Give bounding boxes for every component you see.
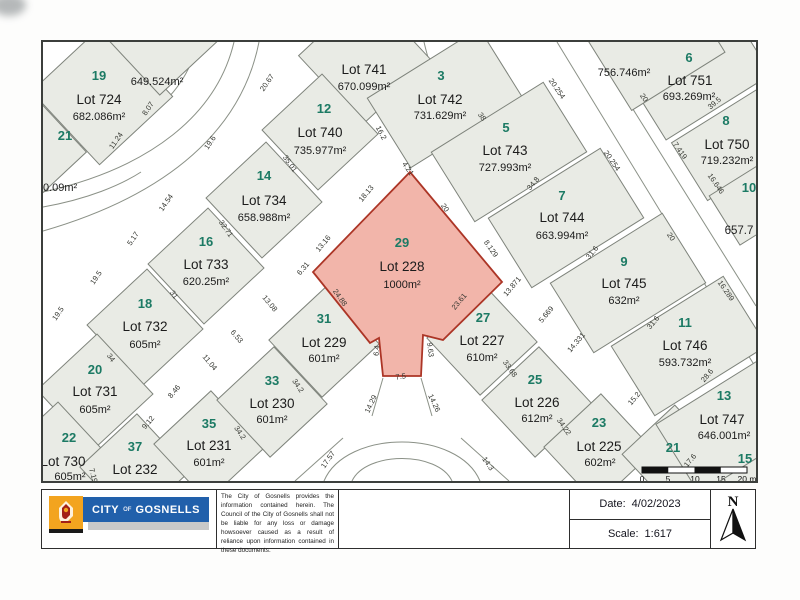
disclaimer-text: The City of Gosnells provides the inform…	[221, 493, 334, 556]
street-number: 27	[476, 310, 490, 325]
map-canvas: 19 Lot 724 682.086m² 21 Lot 741 670.099m…	[43, 42, 756, 481]
lot-area: 610m²	[466, 352, 498, 364]
dimension-label: 20.67	[258, 72, 276, 93]
date-scale-cell: Date: 4/02/2023 Scale: 1:617	[569, 490, 710, 548]
street-number: 25	[528, 372, 542, 387]
lot-area: 605m²	[129, 339, 161, 351]
dimension-label: 9.63	[425, 342, 436, 358]
street-number: 37	[128, 439, 142, 454]
dimension-label: 19.5	[88, 269, 104, 286]
lot-area: 620.25m²	[183, 276, 230, 288]
lot-name: Lot 731	[72, 384, 117, 399]
empty-cell	[339, 490, 569, 548]
dimension-label: 6.53	[229, 328, 245, 345]
street-number: 22	[62, 430, 76, 445]
lot-name: Lot 734	[241, 193, 287, 208]
lot-area: 735.977m²	[294, 145, 347, 157]
lot-name: Lot 750	[704, 137, 749, 152]
lot-area: 646.001m²	[698, 430, 751, 442]
lot-area: 663.994m²	[536, 230, 589, 242]
logo-shadow-bar	[88, 522, 209, 530]
lot-name: Lot 724	[76, 92, 122, 107]
dimension-label: 6.4	[371, 345, 381, 356]
street-number: 7	[558, 188, 565, 203]
lot-area: 612m²	[521, 413, 553, 425]
dimension-label: 18.13	[357, 183, 376, 203]
lot-name: Lot 730	[43, 454, 86, 469]
dimension-label: 7.5	[395, 371, 407, 381]
lot-name: Lot 743	[482, 143, 527, 158]
date-label: Date:	[599, 498, 625, 510]
lot-area: 670.099m²	[338, 81, 391, 93]
north-label: N	[728, 494, 739, 510]
dimension-label: 19.5	[50, 305, 66, 322]
lot-area: 601m²	[308, 353, 340, 365]
street-number: 14	[257, 168, 272, 183]
street-number: 35	[202, 416, 216, 431]
dimension-label: 5.17	[125, 230, 141, 247]
lot-name: Lot 226	[514, 395, 559, 410]
lot-area: 658.988m²	[238, 212, 291, 224]
street-number: 8	[722, 113, 729, 128]
lot-name: Lot 227	[459, 333, 504, 348]
lot-name: Lot 231	[186, 438, 231, 453]
lot-area: 601m²	[193, 457, 225, 469]
title-block: CITY OF GOSNELLS The City of Gosnells pr…	[41, 489, 756, 549]
dimension-label: 5.669	[537, 304, 556, 324]
dimension-label: 14.3	[480, 455, 496, 472]
street-number: 13	[717, 388, 731, 403]
lot-name: Lot 229	[301, 335, 346, 350]
logo-banner: CITY OF GOSNELLS	[83, 497, 209, 522]
dimension-label: 9.12	[140, 414, 156, 431]
street-number: 5	[502, 120, 509, 135]
street-number: 19	[92, 68, 106, 83]
area-label: 756.746m²	[598, 67, 651, 79]
lot-name: Lot 733	[183, 257, 228, 272]
road-number-label: 657.7	[725, 225, 754, 237]
street-number: 6	[685, 50, 692, 65]
street-number-lot-228: 29	[395, 235, 409, 250]
street-number: 9	[620, 254, 627, 269]
street-number: 16	[199, 234, 213, 249]
street-number: 12	[317, 101, 331, 116]
logo-of-text: OF	[123, 507, 131, 513]
street-number: 15	[738, 451, 752, 466]
scale-bar-label: 20 m	[738, 474, 756, 481]
street-number: 23	[592, 415, 606, 430]
lot-area: 719.232m²	[701, 155, 754, 167]
area-label-clipped: 30.09m²	[43, 182, 78, 194]
disclaimer-cell: The City of Gosnells provides the inform…	[216, 490, 339, 548]
dimension-label: 8.46	[166, 383, 182, 400]
logo-city-text: CITY	[92, 504, 119, 516]
lot-area: 593.732m²	[659, 357, 712, 369]
street-number: 3	[437, 68, 444, 83]
street-number: 20	[88, 362, 102, 377]
lot-name: Lot 230	[249, 396, 294, 411]
scale-bar-label: 0	[640, 474, 645, 481]
street-number: 21	[58, 128, 72, 143]
street-number: 10	[742, 180, 756, 195]
scale-row: Scale: 1:617	[570, 520, 710, 549]
gosnells-crest-icon	[49, 496, 83, 529]
dimension-label: 8.129	[482, 238, 500, 259]
lot-area: 605m²	[79, 404, 111, 416]
dimension-label: 14.54	[157, 192, 175, 213]
scale-value: 1:617	[645, 528, 673, 540]
date-row: Date: 4/02/2023	[570, 490, 710, 520]
street-number: 21	[666, 440, 680, 455]
scale-bar-label: 5	[666, 474, 671, 481]
lot-area: 731.629m²	[414, 110, 467, 122]
area-label: 649.524m²	[131, 76, 184, 88]
lot-name: Lot 740	[297, 125, 342, 140]
street-number: 11	[678, 315, 692, 330]
lot-name: Lot 741	[341, 62, 386, 77]
lot-name: Lot 225	[576, 439, 621, 454]
lot-name: Lot 742	[417, 92, 462, 107]
dimension-label: 14.331	[565, 331, 587, 354]
lot-area: 727.993m²	[479, 162, 532, 174]
logo-black-bar	[49, 529, 83, 533]
dimension-label: 11.04	[201, 353, 220, 373]
lot-area: 605m²	[54, 471, 86, 481]
lot-name: Lot 751	[667, 73, 712, 88]
street-number: 33	[265, 373, 279, 388]
lot-name: Lot 746	[662, 338, 707, 353]
scale-bar-label: 15	[716, 474, 726, 481]
lot-name: Lot 232	[112, 462, 157, 477]
lot-area: 632m²	[608, 295, 640, 307]
dimension-label: 13.16	[314, 233, 333, 253]
dimension-label: 13.871	[501, 275, 523, 298]
lot-name: Lot 745	[601, 276, 646, 291]
scale-label: Scale:	[608, 528, 639, 540]
north-arrow-icon: N	[713, 492, 753, 546]
north-cell: N	[710, 490, 755, 548]
scale-bar-label: 10	[690, 474, 700, 481]
lot-area-lot-228: 1000m²	[383, 279, 421, 291]
lot-area: 682.086m²	[73, 111, 126, 123]
cadastral-map: 19 Lot 724 682.086m² 21 Lot 741 670.099m…	[41, 40, 758, 483]
dimension-label: 6.31	[295, 260, 311, 277]
logo-cell: CITY OF GOSNELLS	[42, 490, 216, 548]
lot-name: Lot 744	[539, 210, 585, 225]
date-value: 4/02/2023	[632, 498, 681, 510]
lot-area: 693.269m²	[663, 91, 716, 103]
lot-name: Lot 747	[699, 412, 744, 427]
dimension-label: 19.6	[202, 134, 218, 151]
lot-name-lot-228: Lot 228	[379, 259, 424, 274]
dimension-label: 13.08	[260, 293, 279, 313]
dimension-label: 17.57	[319, 449, 337, 470]
lot-area: 602m²	[584, 457, 616, 469]
logo-gosnells-text: GOSNELLS	[135, 504, 200, 516]
lot-area: 601m²	[256, 414, 288, 426]
lot-name: Lot 732	[122, 319, 167, 334]
street-number: 31	[317, 311, 331, 326]
scan-smudge	[0, 0, 26, 16]
street-number: 18	[138, 296, 152, 311]
dimension-label: 14.29	[363, 394, 379, 415]
